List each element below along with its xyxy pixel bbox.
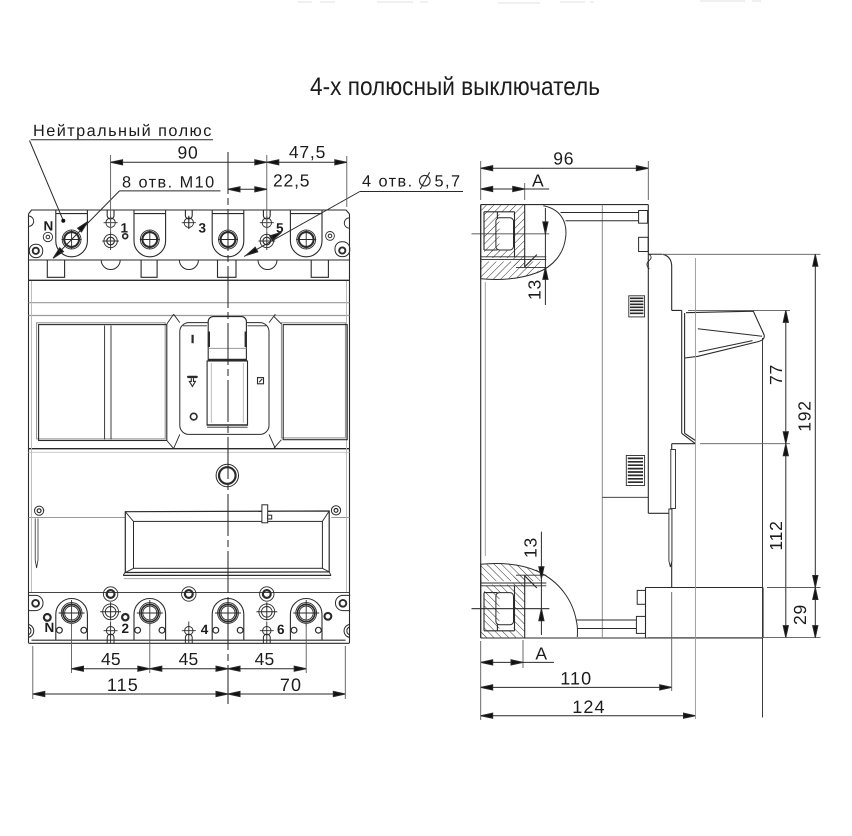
svg-text:13: 13 xyxy=(525,279,545,300)
svg-text:5,7: 5,7 xyxy=(435,173,462,191)
svg-text:110: 110 xyxy=(560,669,592,689)
svg-text:6: 6 xyxy=(277,622,285,637)
svg-text:124: 124 xyxy=(572,697,605,717)
svg-text:96: 96 xyxy=(553,149,574,169)
svg-text:90: 90 xyxy=(177,143,198,163)
svg-text:115: 115 xyxy=(107,675,139,695)
svg-text:4: 4 xyxy=(201,622,209,637)
svg-text:29: 29 xyxy=(790,604,810,625)
svg-text:A: A xyxy=(535,644,547,664)
svg-text:A: A xyxy=(532,171,544,191)
svg-text:2: 2 xyxy=(122,621,130,636)
svg-text:Нейтральный полюс: Нейтральный полюс xyxy=(33,122,213,140)
svg-text:112: 112 xyxy=(766,520,786,550)
svg-text:13: 13 xyxy=(521,537,541,558)
svg-text:8 отв. М10: 8 отв. М10 xyxy=(122,174,216,192)
svg-text:22,5: 22,5 xyxy=(273,171,310,191)
svg-text:N: N xyxy=(44,219,54,234)
svg-text:3: 3 xyxy=(199,221,207,236)
svg-text:45: 45 xyxy=(255,649,275,669)
svg-text:5: 5 xyxy=(276,221,284,236)
svg-text:N: N xyxy=(45,620,55,635)
svg-text:45: 45 xyxy=(179,649,199,669)
svg-text:70: 70 xyxy=(280,675,302,695)
svg-text:192: 192 xyxy=(794,400,814,432)
svg-text:4-х полюсный выключатель: 4-х полюсный выключатель xyxy=(310,73,600,101)
svg-text:47,5: 47,5 xyxy=(289,142,326,162)
svg-text:77: 77 xyxy=(766,364,786,385)
svg-text:4 отв.: 4 отв. xyxy=(362,173,414,191)
svg-text:45: 45 xyxy=(101,649,121,669)
